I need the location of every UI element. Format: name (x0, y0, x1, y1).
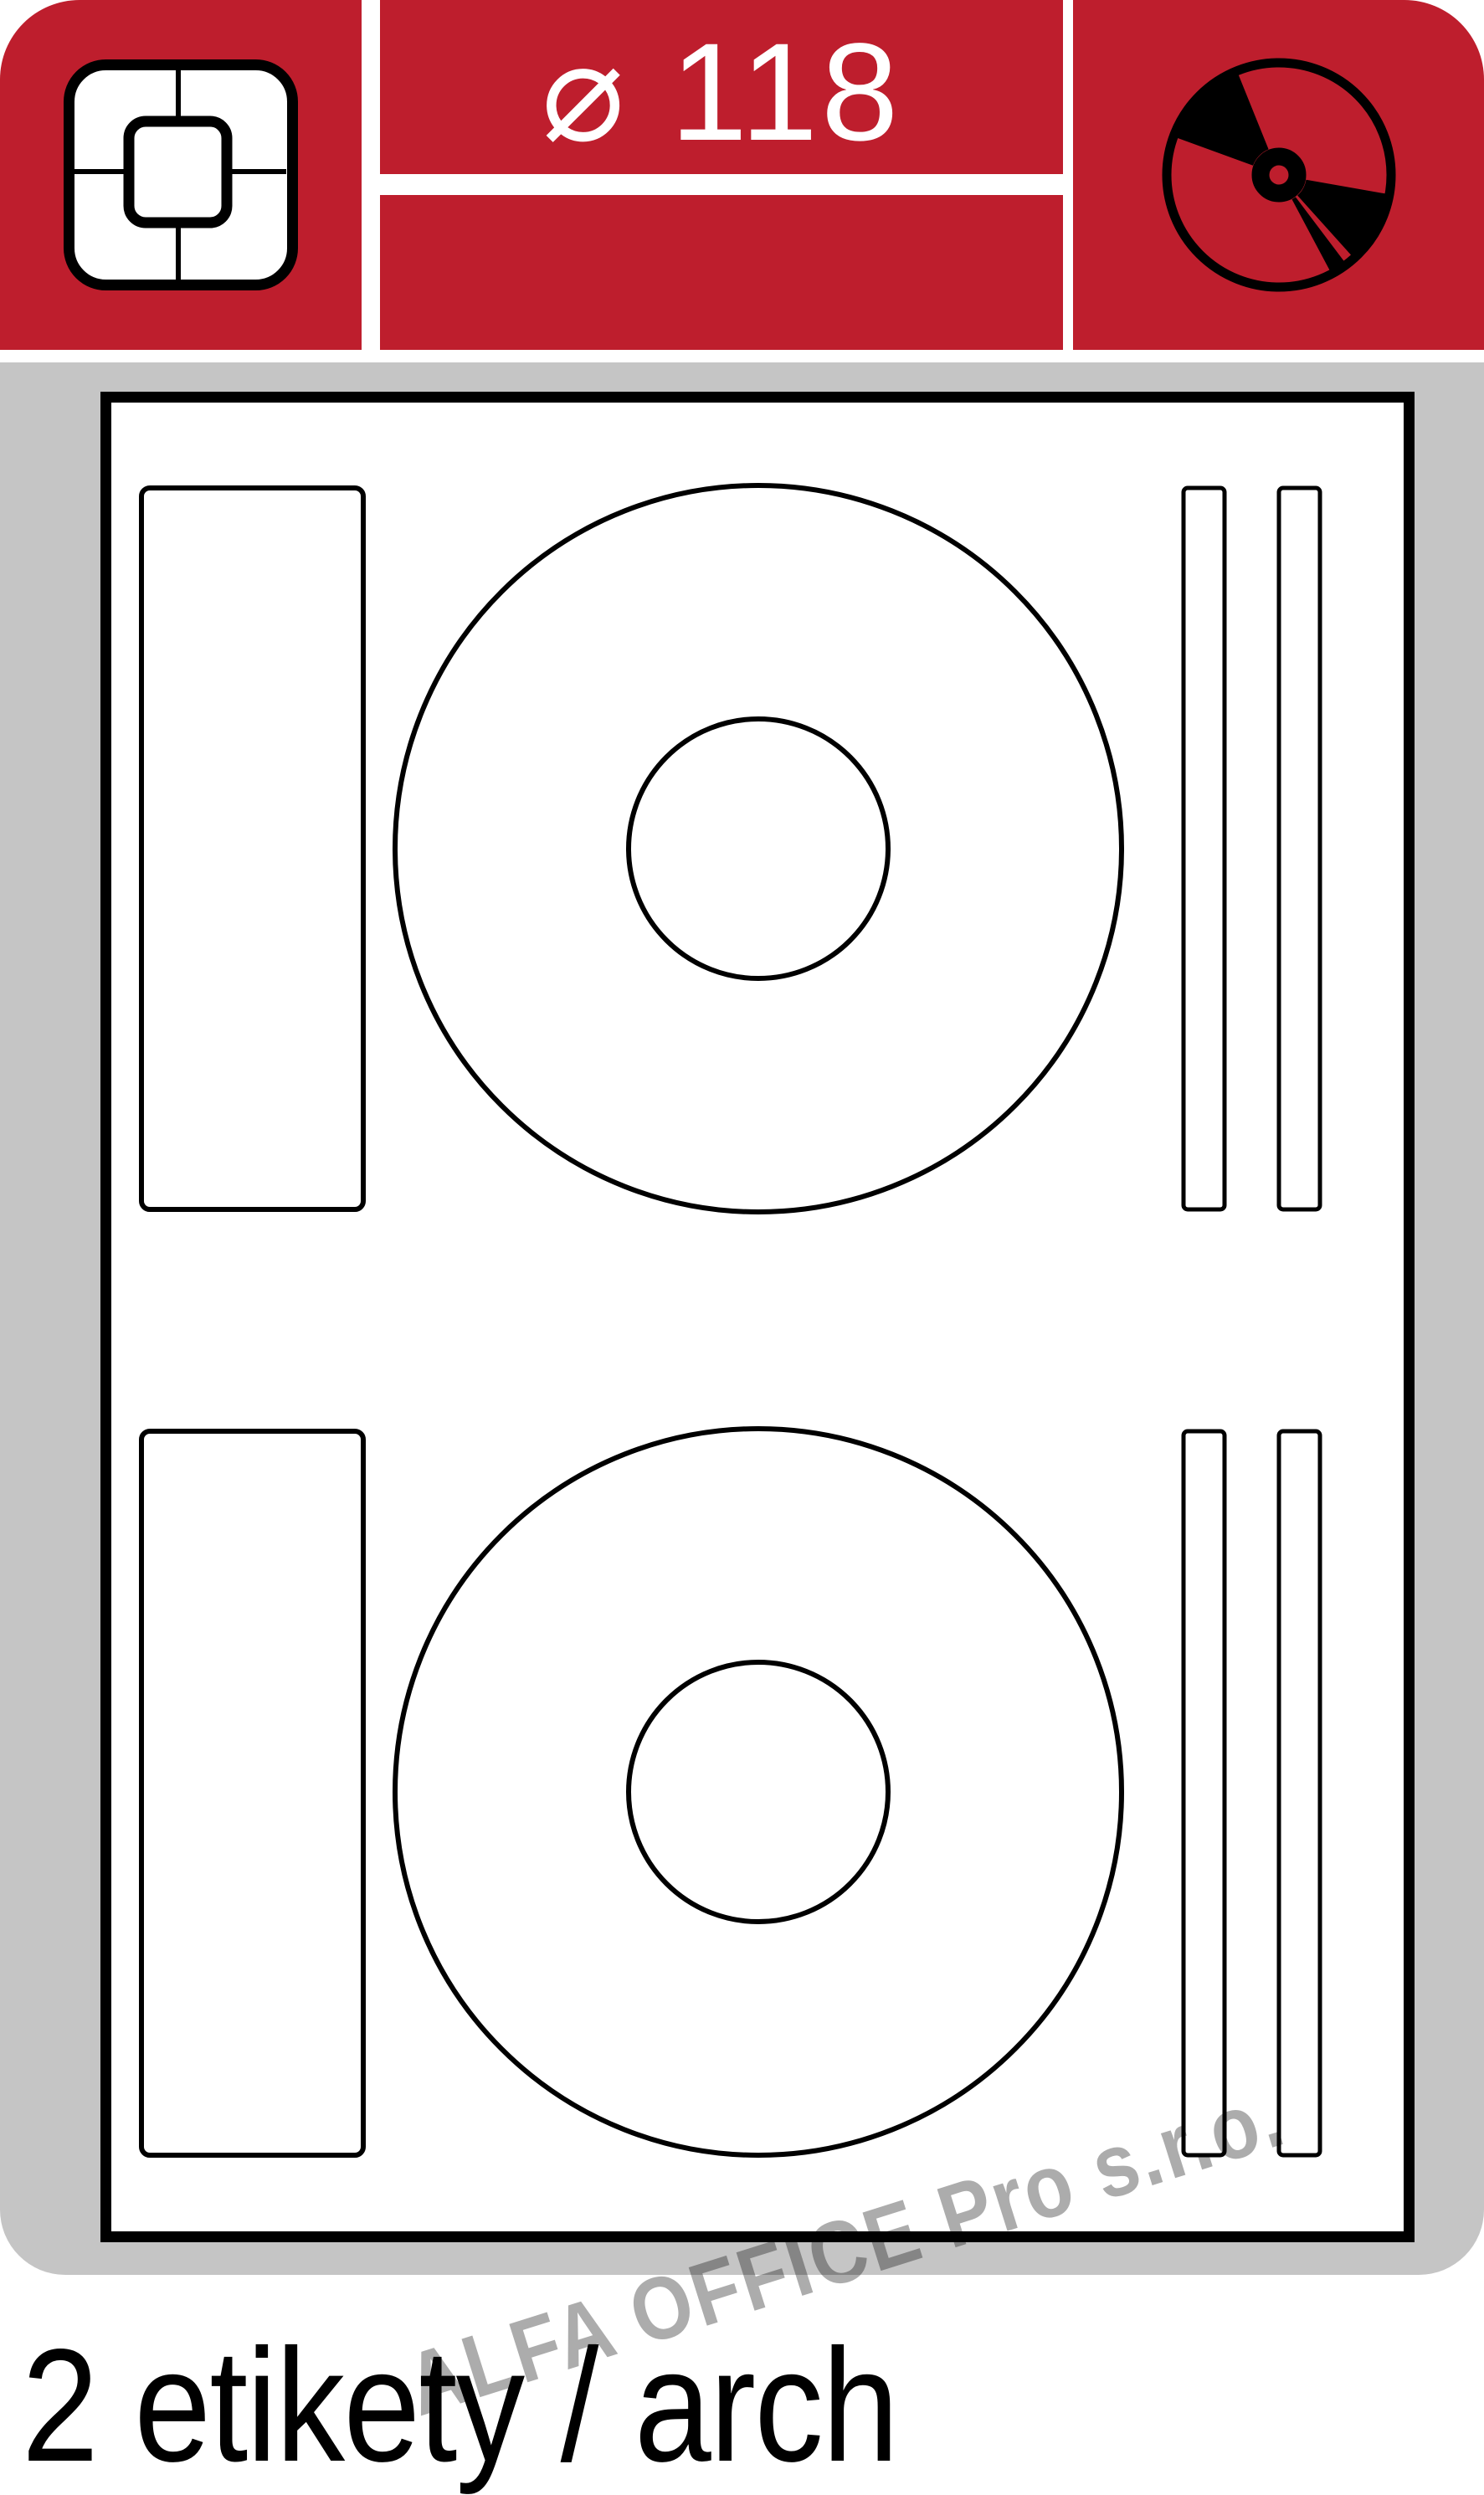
strip-label-row2-a (1184, 1431, 1225, 2155)
cd-disc-outline (1167, 63, 1391, 287)
cd-label-row2-center-hole (629, 1662, 888, 1922)
spine-label-row1 (141, 488, 363, 1209)
cd-disc-wedge-upper-left (1177, 74, 1268, 165)
label-sheet-diecuts (111, 403, 1404, 2231)
spine-label-row2 (141, 1431, 363, 2155)
cd-disc-icon (1153, 49, 1404, 300)
strip-label-row1-b (1279, 488, 1320, 1209)
label-sheet-page (100, 392, 1415, 2242)
header-right-panel (1073, 0, 1484, 350)
cd-label-row1-center-hole (629, 719, 888, 978)
strip-label-row1-a (1184, 488, 1225, 1209)
label-sheet-icon (64, 59, 298, 290)
labels-per-sheet-caption: 2 etikety / arch (22, 2325, 897, 2486)
header-left-panel (0, 0, 362, 350)
header-diameter-panel: ⌀ 118 (380, 0, 1063, 174)
label-sheet-icon-center (129, 121, 227, 223)
page-root: { "page": { "width_px": 1773, "height_px… (0, 0, 1484, 2492)
diameter-label: ⌀ 118 (542, 12, 902, 173)
strip-label-row2-b (1279, 1431, 1320, 2155)
header-sub-panel (380, 195, 1063, 350)
